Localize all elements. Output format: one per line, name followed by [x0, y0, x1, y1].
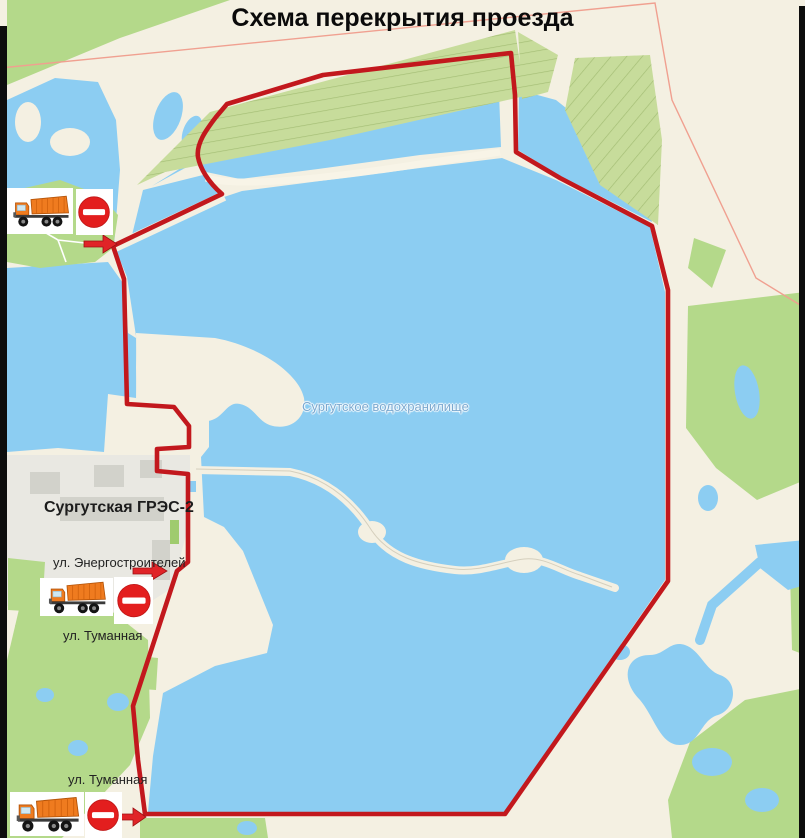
- truck-icon: [7, 188, 73, 234]
- right-border-strip: [799, 6, 805, 838]
- road-closure-scheme: Схема перекрытия проезда Сургутское водо…: [0, 0, 805, 838]
- reservoir-label: Сургутское водохранилище: [302, 399, 469, 414]
- no-entry-sign-icon: [85, 792, 122, 838]
- street-label-tumannaya-bottom: ул. Туманная: [68, 772, 147, 787]
- no-entry-sign-icon: [76, 189, 113, 235]
- truck-icon: [40, 578, 113, 616]
- power-plant-label: Сургутская ГРЭС-2: [44, 499, 194, 517]
- no-entry-sign-icon: [114, 577, 153, 624]
- left-border-strip: [0, 26, 7, 838]
- page-title: Схема перекрытия проезда: [0, 4, 805, 33]
- street-label-energostroiteley: ул. Энергостроителей: [53, 555, 186, 570]
- truck-icon: [10, 792, 84, 836]
- street-label-tumannaya-mid: ул. Туманная: [63, 628, 142, 643]
- map-canvas: [0, 0, 805, 838]
